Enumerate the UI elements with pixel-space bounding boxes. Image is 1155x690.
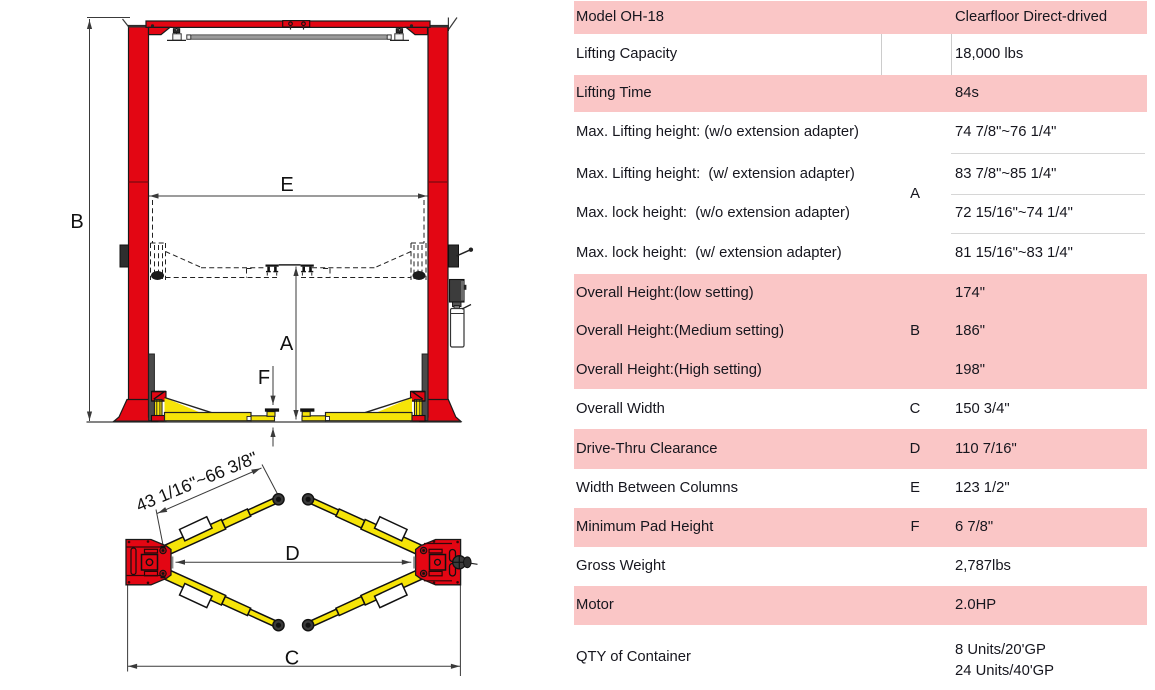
svg-text:F: F (258, 367, 270, 389)
svg-text:43 1/16"~66 3/8": 43 1/16"~66 3/8" (133, 447, 260, 515)
svg-text:E: E (280, 174, 293, 196)
svg-text:C: C (285, 648, 299, 670)
svg-text:D: D (285, 543, 299, 565)
svg-text:A: A (280, 333, 294, 355)
svg-text:B: B (70, 211, 83, 233)
